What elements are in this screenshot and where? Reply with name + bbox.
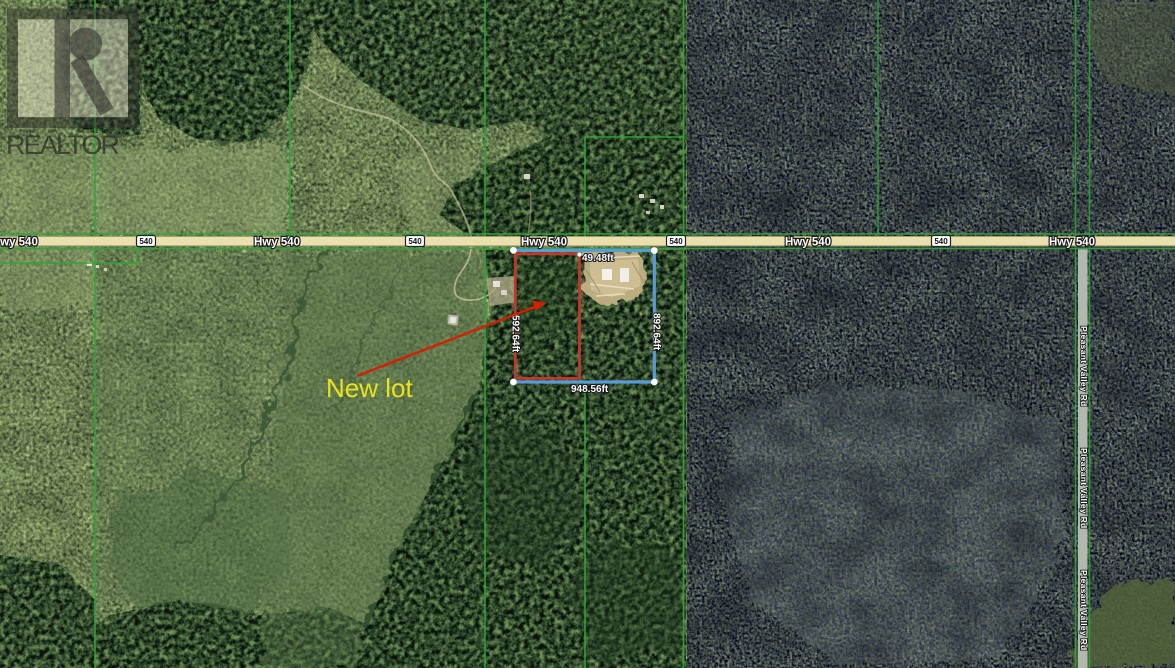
- svg-text:Hwy 540: Hwy 540: [785, 237, 831, 249]
- svg-text:540: 540: [139, 237, 153, 246]
- svg-text:Pleasant Valley Rd: Pleasant Valley Rd: [1079, 570, 1089, 651]
- svg-text:Hwy 540: Hwy 540: [1049, 237, 1095, 249]
- svg-text:948.56ft: 948.56ft: [571, 384, 609, 395]
- svg-text:540: 540: [408, 237, 422, 246]
- svg-text:REALTOR: REALTOR: [6, 130, 120, 160]
- svg-text:892.64ft: 892.64ft: [651, 313, 662, 351]
- svg-text:49.48ft: 49.48ft: [582, 253, 614, 264]
- svg-text:592.64ft: 592.64ft: [510, 315, 521, 353]
- svg-text:540: 540: [934, 237, 948, 246]
- svg-text:Hwy 540: Hwy 540: [254, 237, 300, 249]
- svg-text:Hwy 540: Hwy 540: [521, 237, 567, 249]
- svg-text:540: 540: [669, 237, 683, 246]
- svg-text:®: ®: [121, 132, 128, 142]
- svg-text:New lot: New lot: [326, 373, 413, 403]
- svg-text:Pleasant Valley Rd: Pleasant Valley Rd: [1079, 326, 1089, 407]
- svg-text:wy 540: wy 540: [0, 237, 38, 249]
- svg-text:Pleasant Valley Rd: Pleasant Valley Rd: [1079, 448, 1089, 529]
